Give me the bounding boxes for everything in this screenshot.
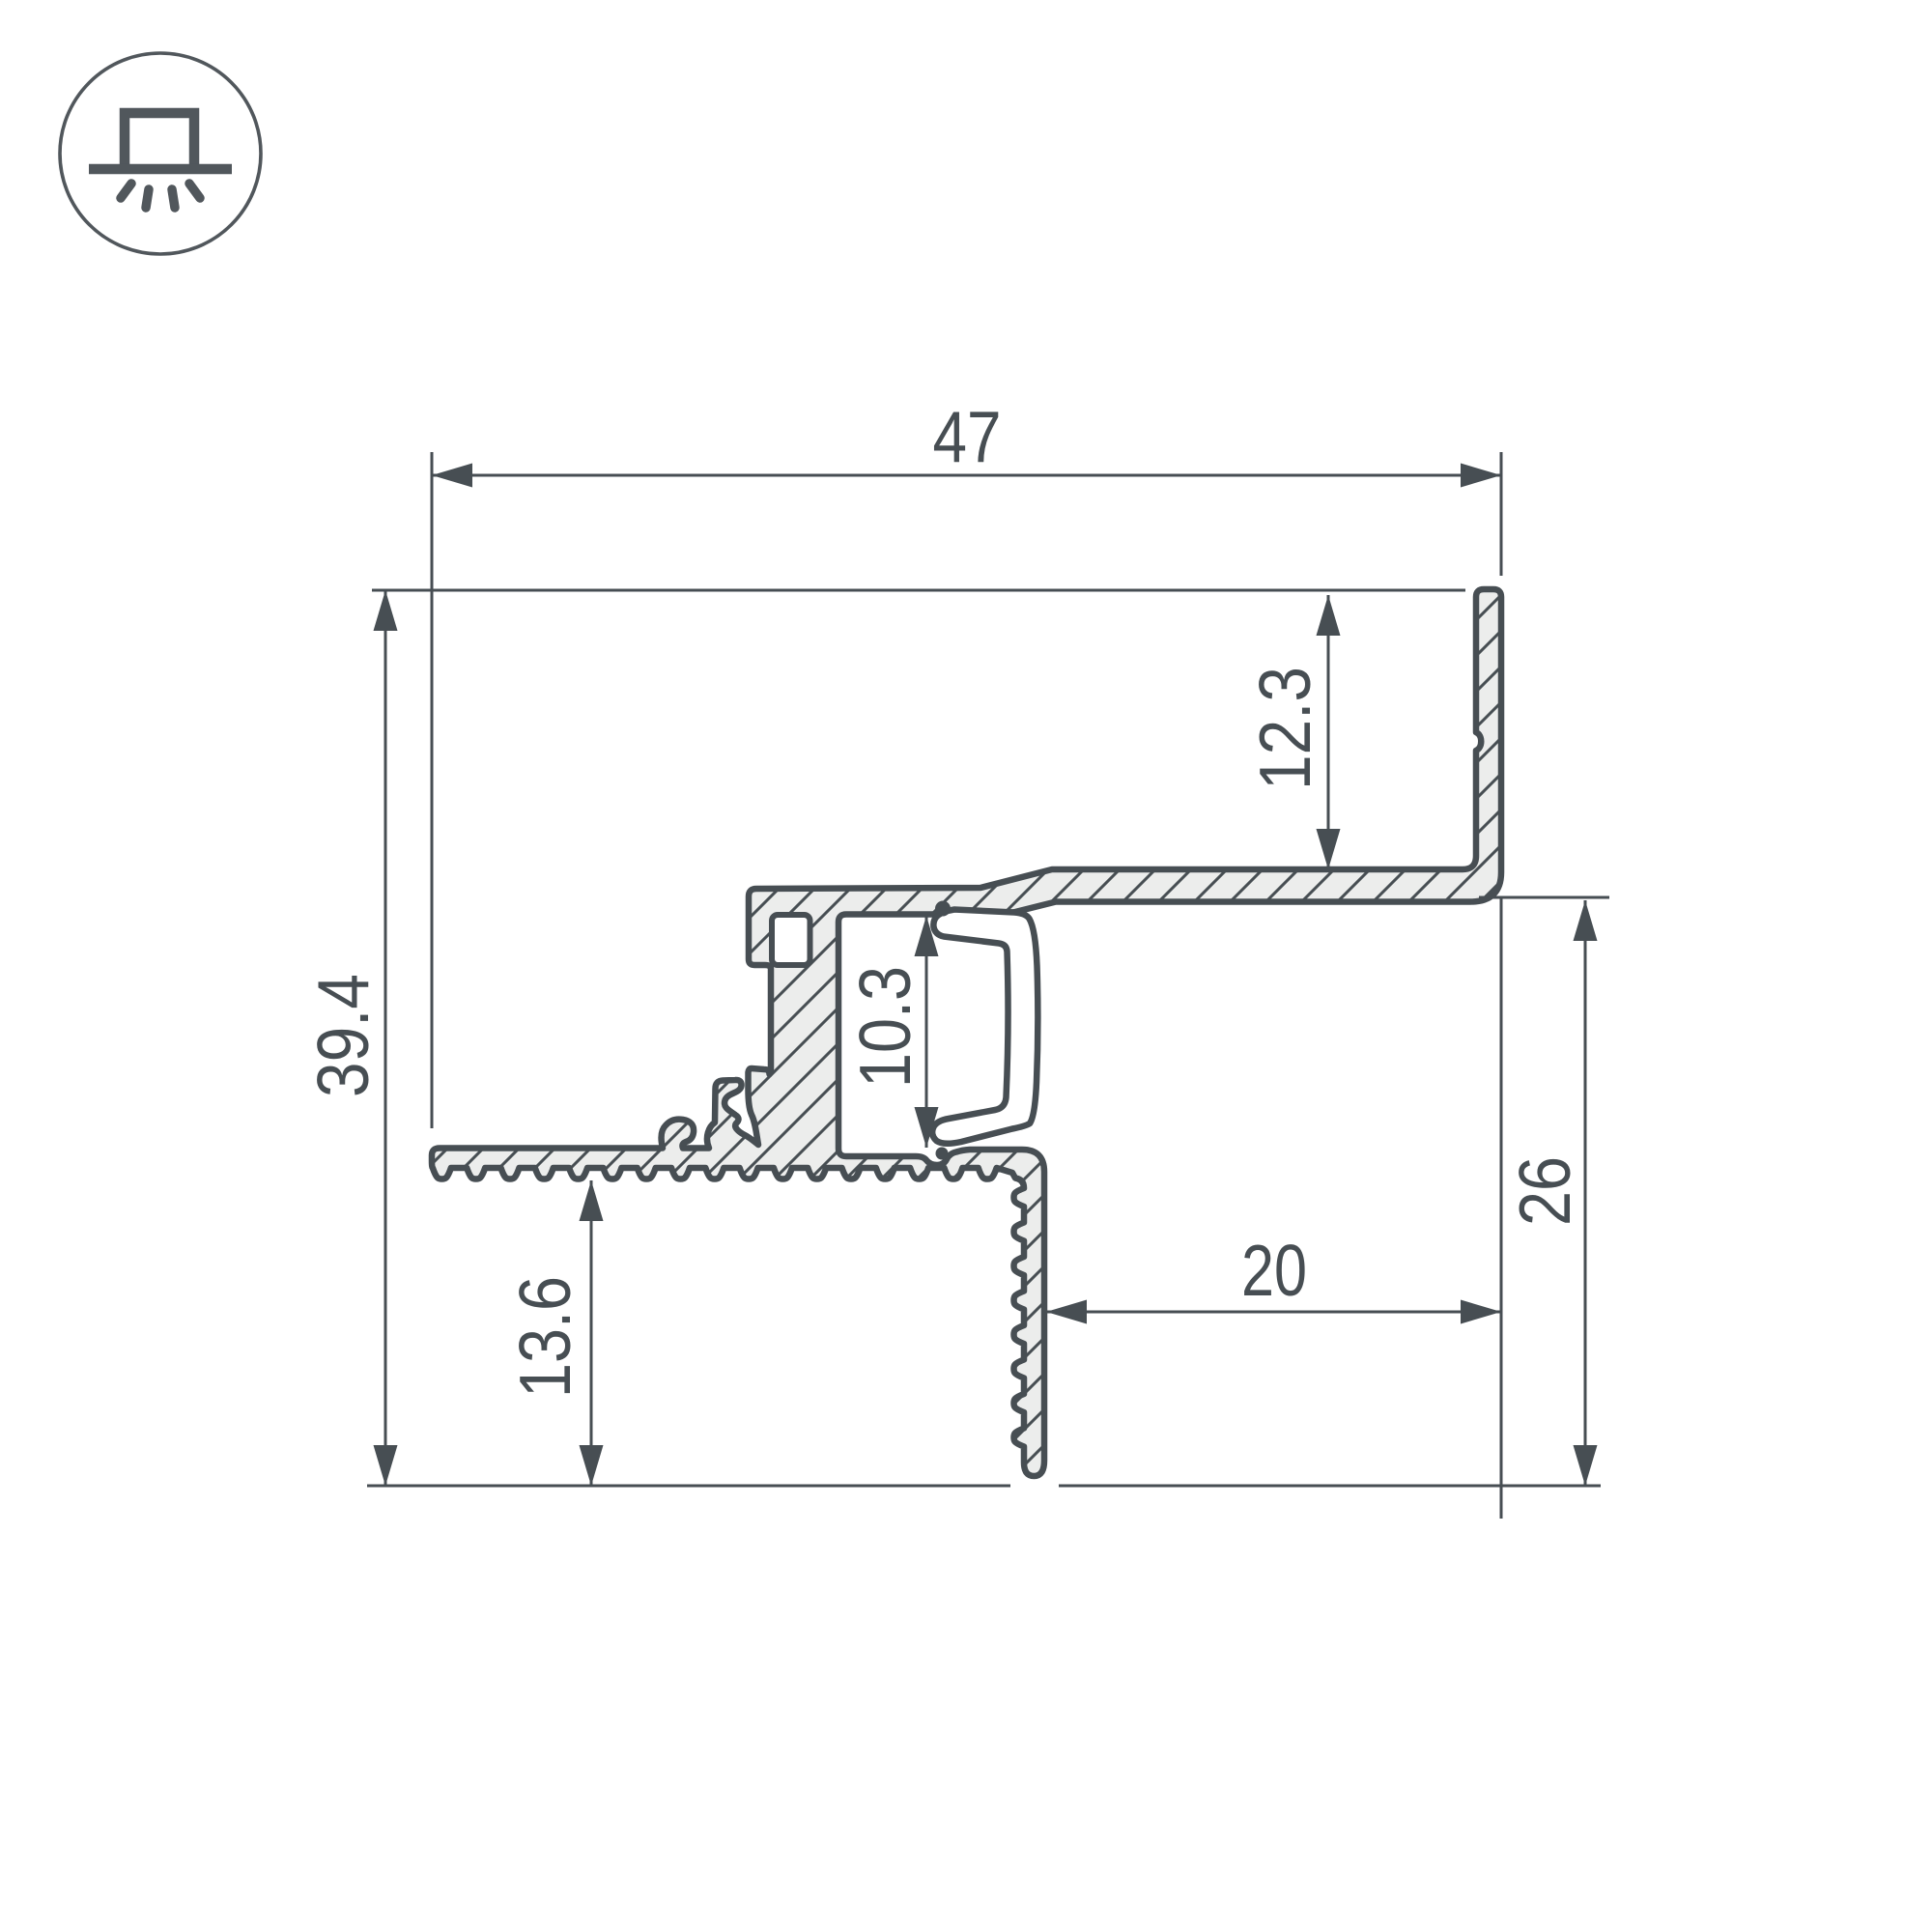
svg-text:12.3: 12.3 [1244,667,1325,790]
svg-text:26: 26 [1504,1156,1585,1226]
svg-text:39.4: 39.4 [302,974,384,1097]
svg-text:13.6: 13.6 [504,1276,585,1398]
svg-text:47: 47 [933,396,1002,477]
svg-text:10.3: 10.3 [844,966,925,1088]
svg-text:20: 20 [1241,1230,1307,1311]
